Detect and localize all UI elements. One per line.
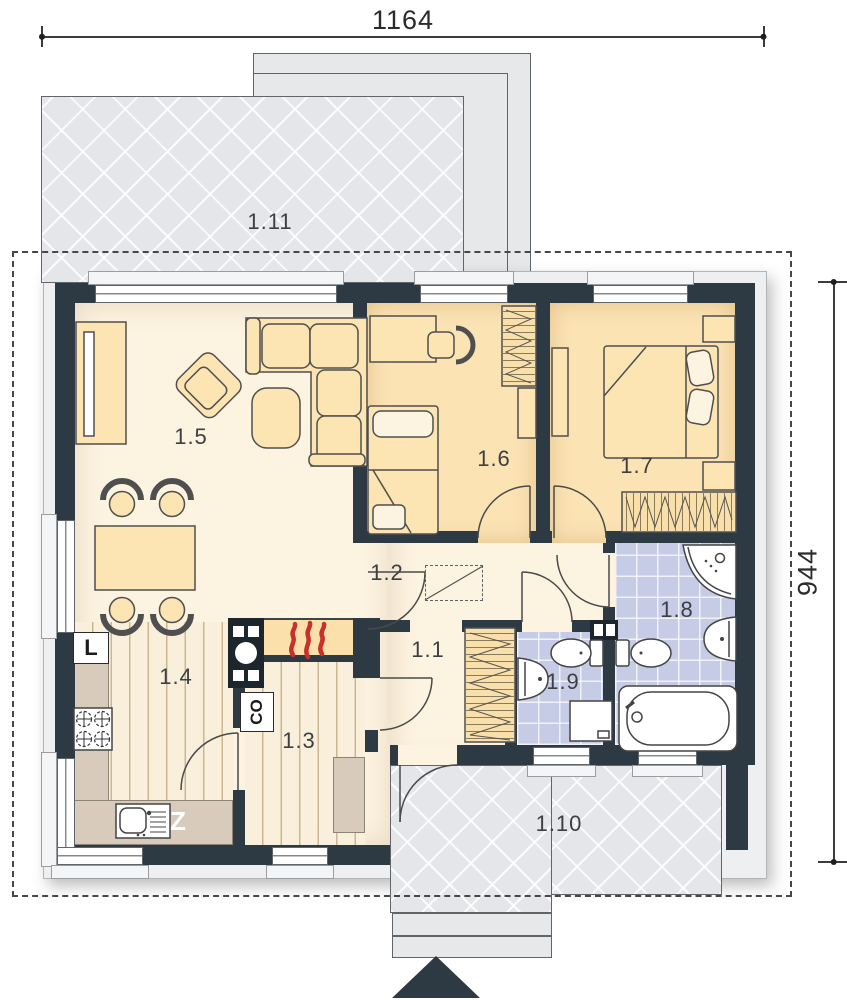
floor-plan: 1164 944 <box>0 0 847 1000</box>
room-label-bedroom2: 1.7 <box>620 453 654 479</box>
room-label-bathroom: 1.8 <box>660 597 694 623</box>
room-label-bedroom1: 1.6 <box>477 446 511 472</box>
room-label-hall: 1.2 <box>370 560 404 586</box>
room-label-terrace-front: 1.10 <box>536 811 583 837</box>
room-label-terrace-rear: 1.11 <box>247 209 292 235</box>
room-label-corridor: 1.3 <box>282 728 316 754</box>
room-label-wc: 1.9 <box>546 669 580 695</box>
room-label-kitchen: 1.4 <box>159 664 193 690</box>
room-label-vestibule: 1.1 <box>411 637 445 663</box>
room-label-living-room: 1.5 <box>174 424 208 450</box>
